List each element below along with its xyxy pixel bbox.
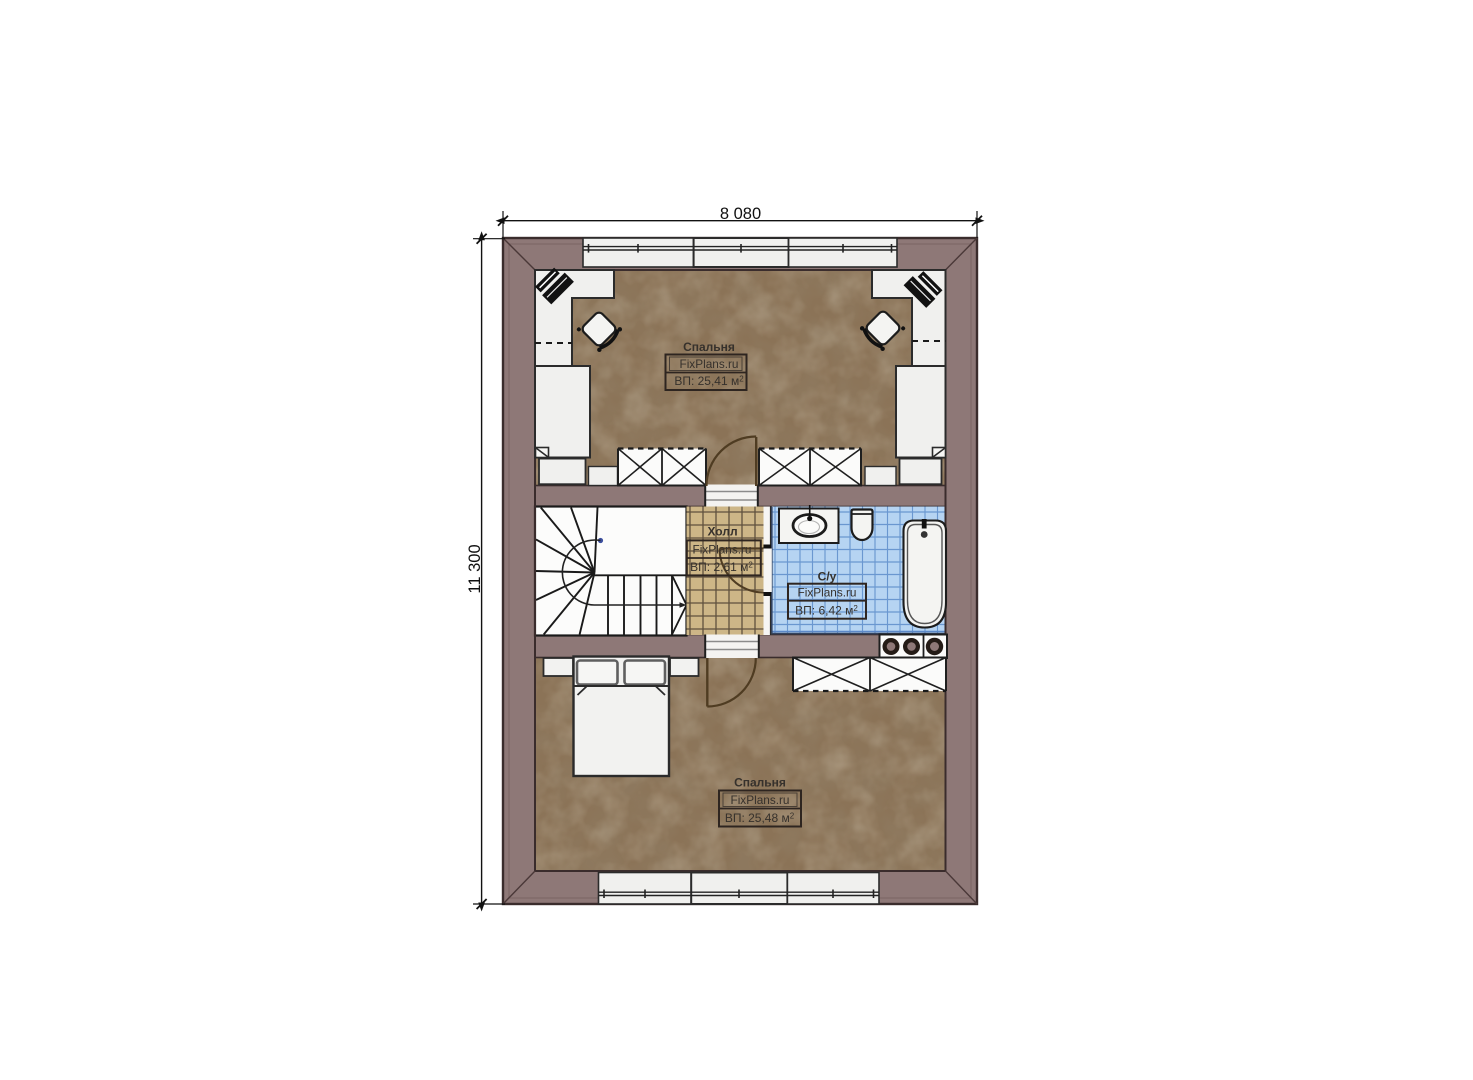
svg-text:Холл: Холл bbox=[707, 525, 737, 539]
svg-text:FixPlans.ru: FixPlans.ru bbox=[692, 542, 751, 556]
svg-text:FixPlans.ru: FixPlans.ru bbox=[797, 585, 856, 599]
svg-text:С/у: С/у bbox=[818, 570, 837, 584]
svg-text:ВП: 25,48 м2: ВП: 25,48 м2 bbox=[725, 811, 795, 825]
svg-text:ВП: 25,41 м2: ВП: 25,41 м2 bbox=[674, 374, 744, 388]
svg-text:Спальня: Спальня bbox=[683, 340, 735, 354]
svg-text:8 080: 8 080 bbox=[720, 205, 761, 223]
svg-text:ВП: 2,61 м2: ВП: 2,61 м2 bbox=[690, 560, 753, 574]
svg-text:Спальня: Спальня bbox=[734, 776, 786, 790]
svg-text:ВП: 6,42 м2: ВП: 6,42 м2 bbox=[795, 603, 858, 617]
svg-text:11 300: 11 300 bbox=[466, 544, 484, 593]
svg-text:FixPlans.ru: FixPlans.ru bbox=[679, 357, 738, 371]
svg-text:FixPlans.ru: FixPlans.ru bbox=[730, 793, 789, 807]
